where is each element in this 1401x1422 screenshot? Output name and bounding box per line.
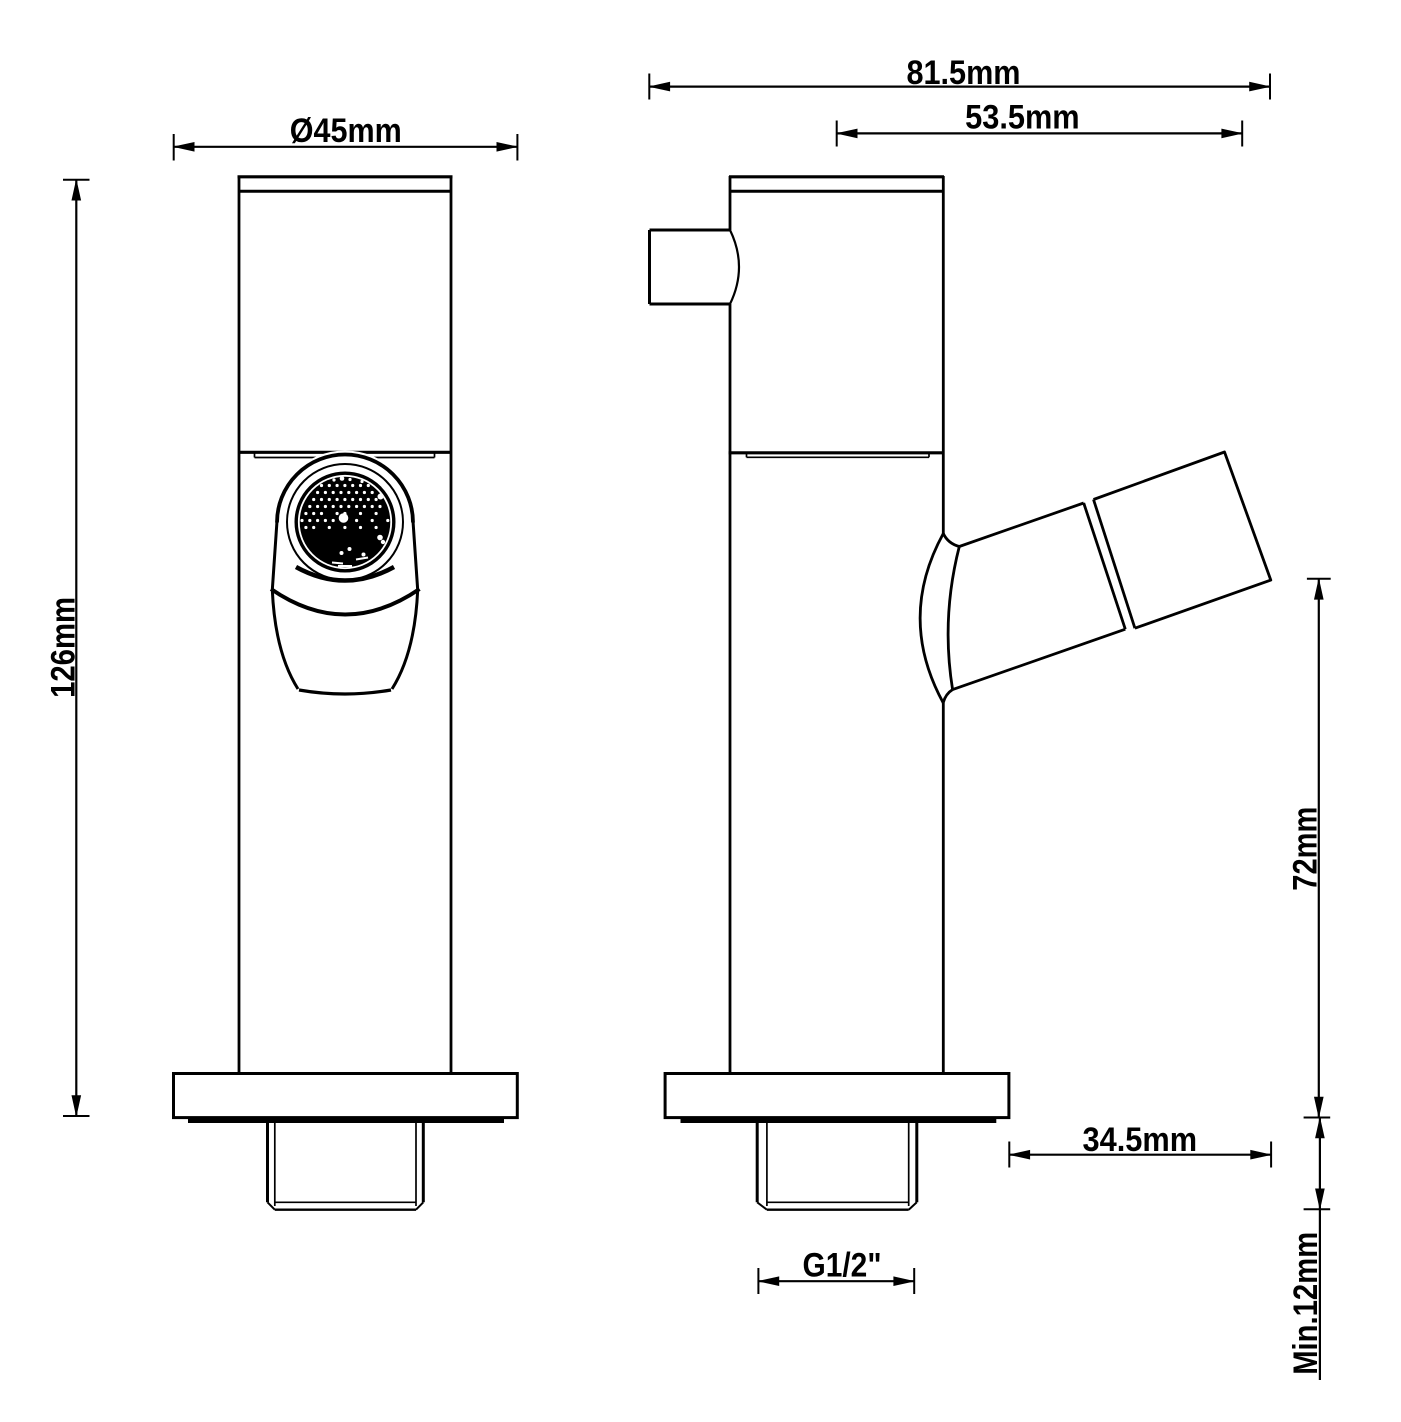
svg-text:126mm: 126mm <box>44 597 82 698</box>
svg-text:G1/2": G1/2" <box>803 1247 882 1285</box>
svg-text:34.5mm: 34.5mm <box>1083 1121 1198 1159</box>
svg-text:Ø45mm: Ø45mm <box>290 112 402 150</box>
svg-text:81.5mm: 81.5mm <box>907 54 1021 92</box>
svg-text:53.5mm: 53.5mm <box>965 98 1080 136</box>
svg-text:Min.12mm: Min.12mm <box>1287 1232 1325 1375</box>
svg-text:72mm: 72mm <box>1287 807 1325 891</box>
